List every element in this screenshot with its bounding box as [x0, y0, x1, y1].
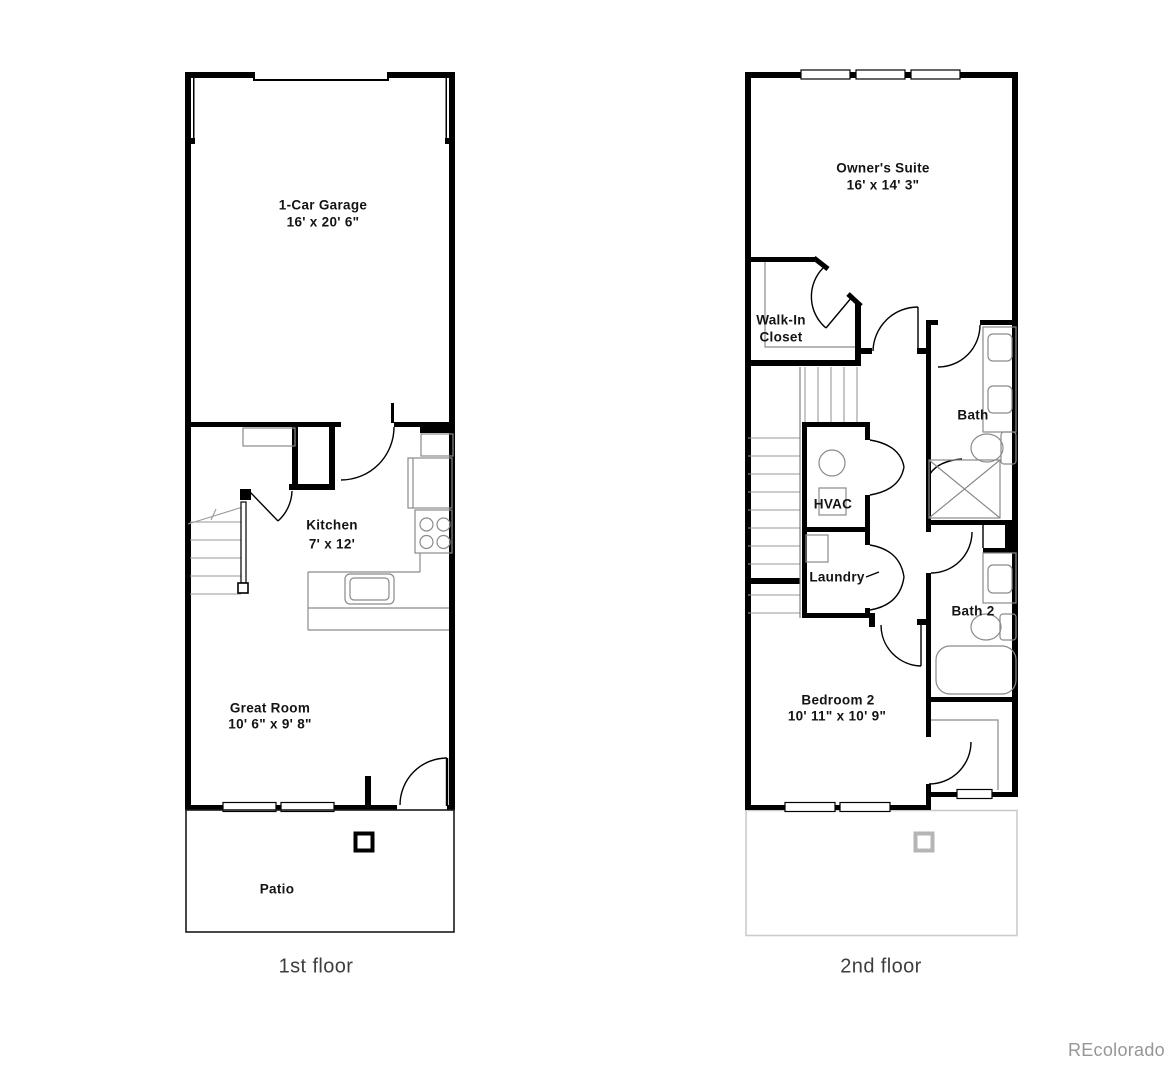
laundry-unit — [806, 535, 828, 562]
ghost-patio-post — [916, 834, 933, 851]
stair-door-leaf — [250, 492, 278, 521]
bath-toilet — [971, 432, 1016, 464]
first-floor-caption: 1st floor — [279, 956, 354, 979]
floorplan-page: 1-Car Garage 16' x 20' 6" Kitchen 7' x 1… — [0, 0, 1171, 1067]
bath-shower — [929, 460, 1000, 518]
bedroom2-label: Bedroom 2 — [801, 692, 874, 709]
suite-door-arc — [873, 307, 918, 351]
kitchen-counter — [308, 572, 449, 630]
bedroom2-closet-shelf — [931, 720, 998, 790]
shower-door-arc — [930, 459, 962, 474]
great-room-dims: 10' 6" x 9' 8" — [228, 716, 311, 733]
owners-suite-label: Owner's Suite — [836, 160, 929, 177]
floorplan-drawing — [0, 0, 1171, 1067]
owners-suite-dims: 16' x 14' 3" — [847, 177, 920, 194]
walkin-closet-label-line1: Walk-In — [756, 312, 806, 329]
garage-door-arc — [341, 427, 394, 480]
second-floor-plan — [745, 70, 1018, 936]
first-floor-stairs — [188, 506, 246, 594]
bath-door-arc — [938, 325, 980, 367]
hvac-label: HVAC — [814, 496, 852, 513]
kitchen-sink — [345, 574, 394, 604]
bath2-door-arc — [931, 532, 972, 573]
kitchen-dims: 7' x 12' — [309, 536, 355, 553]
bathtub — [936, 646, 1016, 694]
laundry-label: Laundry — [809, 569, 864, 586]
bath2-label: Bath 2 — [951, 603, 994, 620]
patio-label: Patio — [260, 881, 295, 898]
walkin-closet-label-line2: Closet — [759, 329, 802, 346]
garage-label: 1-Car Garage — [279, 197, 367, 214]
oven-counter — [408, 458, 452, 508]
recolorado-watermark: REcolorado — [1068, 1040, 1165, 1061]
fridge — [421, 434, 453, 456]
bedroom2-dims: 10' 11" x 10' 9" — [788, 708, 886, 725]
bedroom2-door-arc — [881, 625, 921, 666]
stair-handrail — [238, 502, 248, 593]
closet-angled-nubs — [814, 258, 861, 306]
first-floor-walls — [185, 72, 455, 811]
bedroom2-closet-door-arc — [929, 742, 971, 784]
laundry-door-arcs — [870, 545, 904, 610]
walkin-closet-door-arc — [811, 268, 826, 328]
ghost-patio-outline — [746, 811, 1017, 936]
closet-shelf — [243, 428, 295, 446]
water-heater — [819, 450, 845, 476]
kitchen-label: Kitchen — [306, 517, 358, 534]
stair-direction-line — [188, 506, 246, 524]
patio-post — [356, 834, 373, 851]
bath-label: Bath — [957, 407, 988, 424]
great-room-label: Great Room — [230, 700, 310, 717]
bath2-vanity — [983, 553, 1016, 603]
great-room-door-arc — [400, 758, 447, 805]
stair-direction-tick — [211, 509, 216, 520]
stair-door-arc — [278, 491, 292, 521]
first-floor-doors — [250, 427, 447, 806]
garage-dims: 16' x 20' 6" — [287, 214, 360, 231]
stove — [415, 510, 452, 553]
patio-outline — [186, 810, 454, 932]
walkin-closet-door-leaf — [826, 297, 852, 328]
hvac-door-arcs — [870, 440, 904, 495]
second-floor-caption: 2nd floor — [840, 956, 921, 979]
